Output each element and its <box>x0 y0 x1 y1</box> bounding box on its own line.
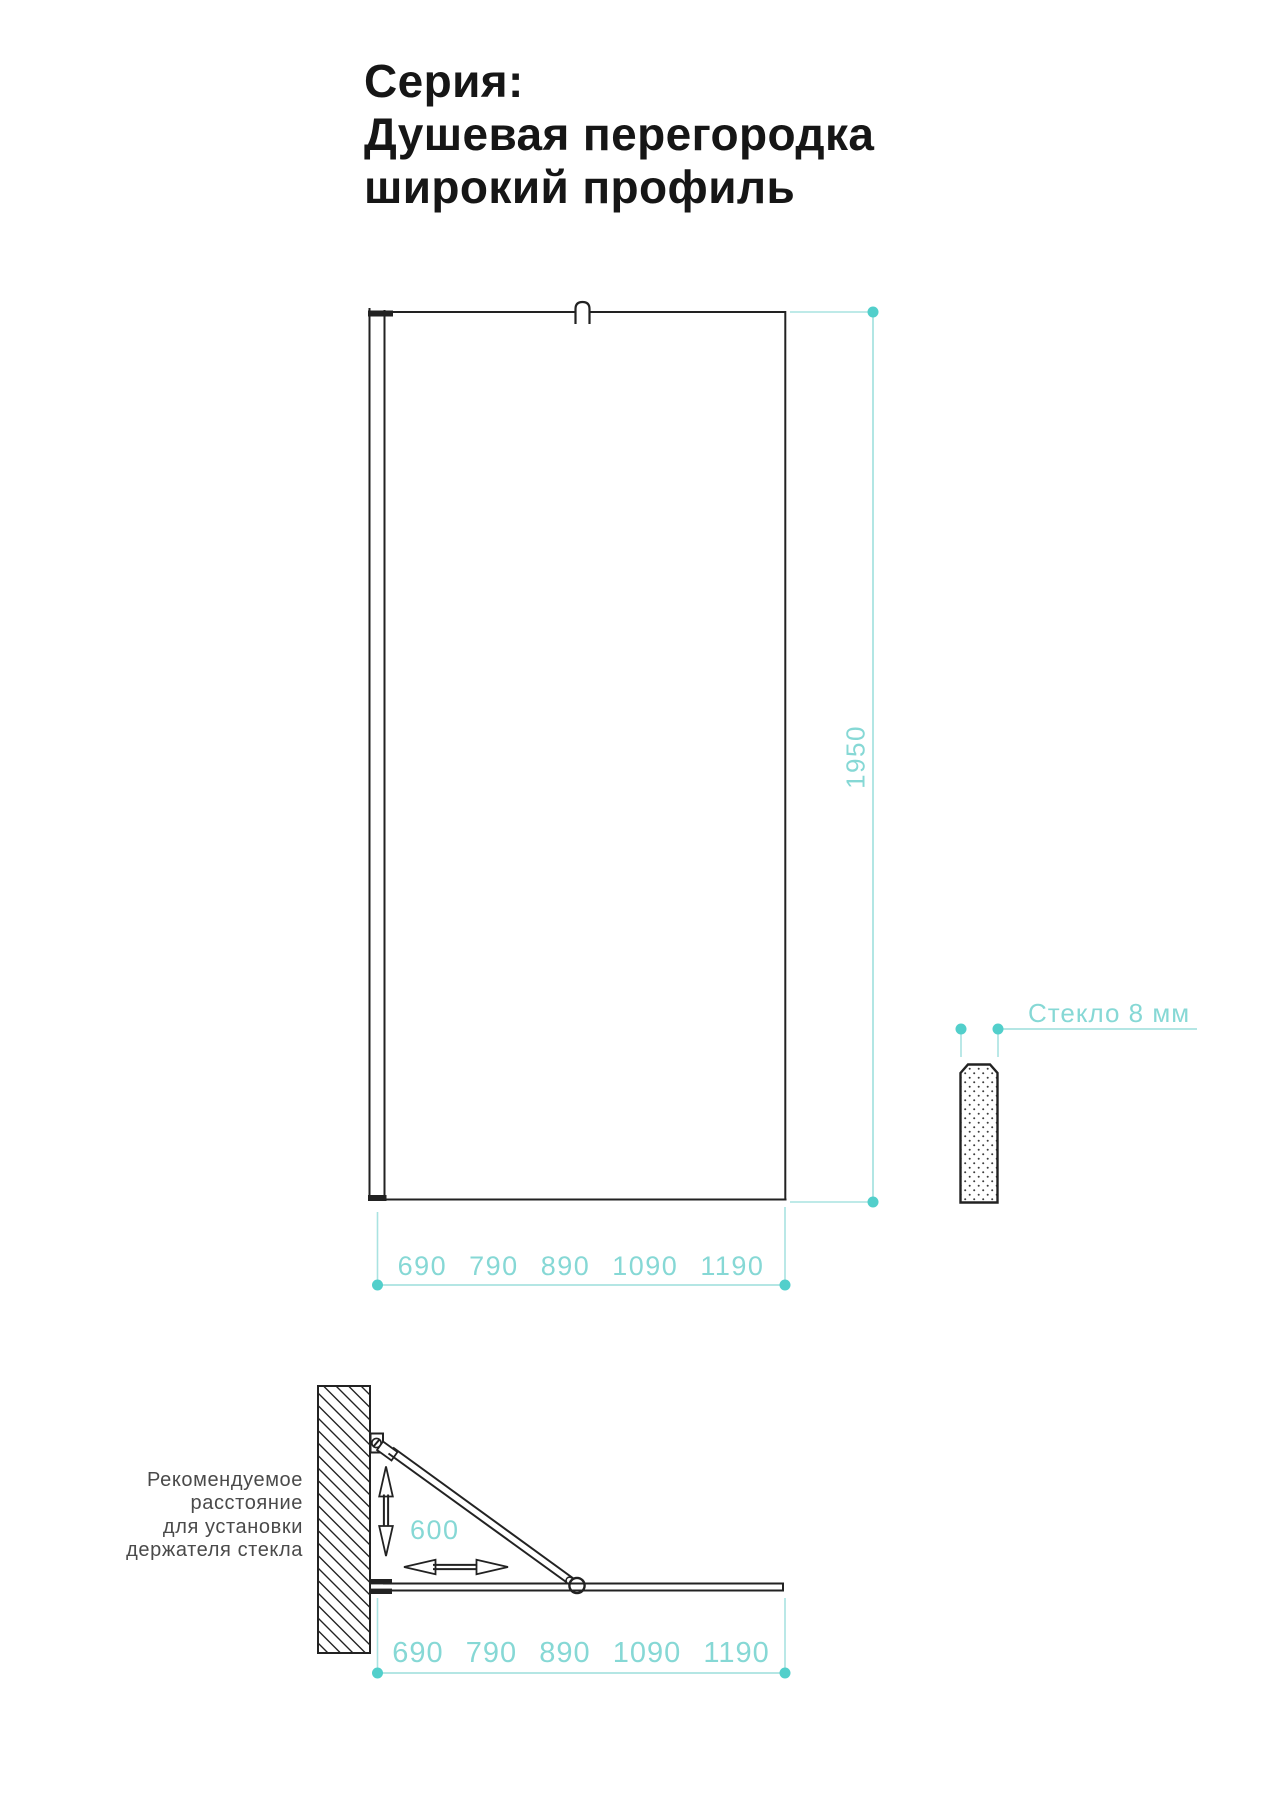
glass-thickness-label: Стекло 8 мм <box>1028 998 1190 1029</box>
top-holder-tab <box>576 302 590 324</box>
note-line: держателя стекла <box>95 1539 303 1562</box>
dimension-endpoint-dot <box>780 1668 791 1679</box>
series-title: Серия: Душевая перегородка широкий профи… <box>364 55 874 214</box>
vertical-double-arrow <box>379 1467 393 1557</box>
dimension-endpoint-dot <box>993 1024 1004 1035</box>
series-title-line: широкий профиль <box>364 161 874 214</box>
dimension-endpoint-dot <box>956 1024 967 1035</box>
support-bar <box>393 1448 576 1581</box>
wall-profile-plan <box>370 1589 392 1594</box>
height-dimension-label: 1950 <box>841 725 872 789</box>
note-line: для установки <box>95 1516 303 1539</box>
dimension-endpoint-dot <box>780 1280 791 1291</box>
holder-recommendation-note: Рекомендуемое расстояние для установки д… <box>95 1469 303 1563</box>
front-view-panel <box>368 302 787 1201</box>
spec-sheet: Серия: Душевая перегородка широкий профи… <box>0 0 1273 1800</box>
horizontal-double-arrow <box>404 1560 508 1574</box>
glass-cross-section <box>956 1024 1198 1203</box>
plan-view <box>318 1386 783 1653</box>
profile-bottom-cap <box>368 1195 387 1201</box>
note-line: расстояние <box>95 1492 303 1515</box>
holder-distance-label: 600 <box>410 1515 460 1546</box>
note-line: Рекомендуемое <box>95 1469 303 1492</box>
wall-profile-plan <box>370 1579 392 1584</box>
dimension-endpoint-dot <box>868 307 879 318</box>
wall-hatched <box>318 1386 370 1653</box>
profile-top-cap <box>368 311 393 317</box>
front-width-options-label: 690 790 890 1090 1190 <box>398 1251 765 1282</box>
glass-section-body <box>961 1065 998 1203</box>
plan-width-options-label: 690 790 890 1090 1190 <box>392 1637 770 1670</box>
series-title-line: Серия: <box>364 55 874 108</box>
dimension-endpoint-dot <box>372 1280 383 1291</box>
dimension-endpoint-dot <box>372 1668 383 1679</box>
dimension-endpoint-dot <box>868 1197 879 1208</box>
series-title-line: Душевая перегородка <box>364 108 874 161</box>
